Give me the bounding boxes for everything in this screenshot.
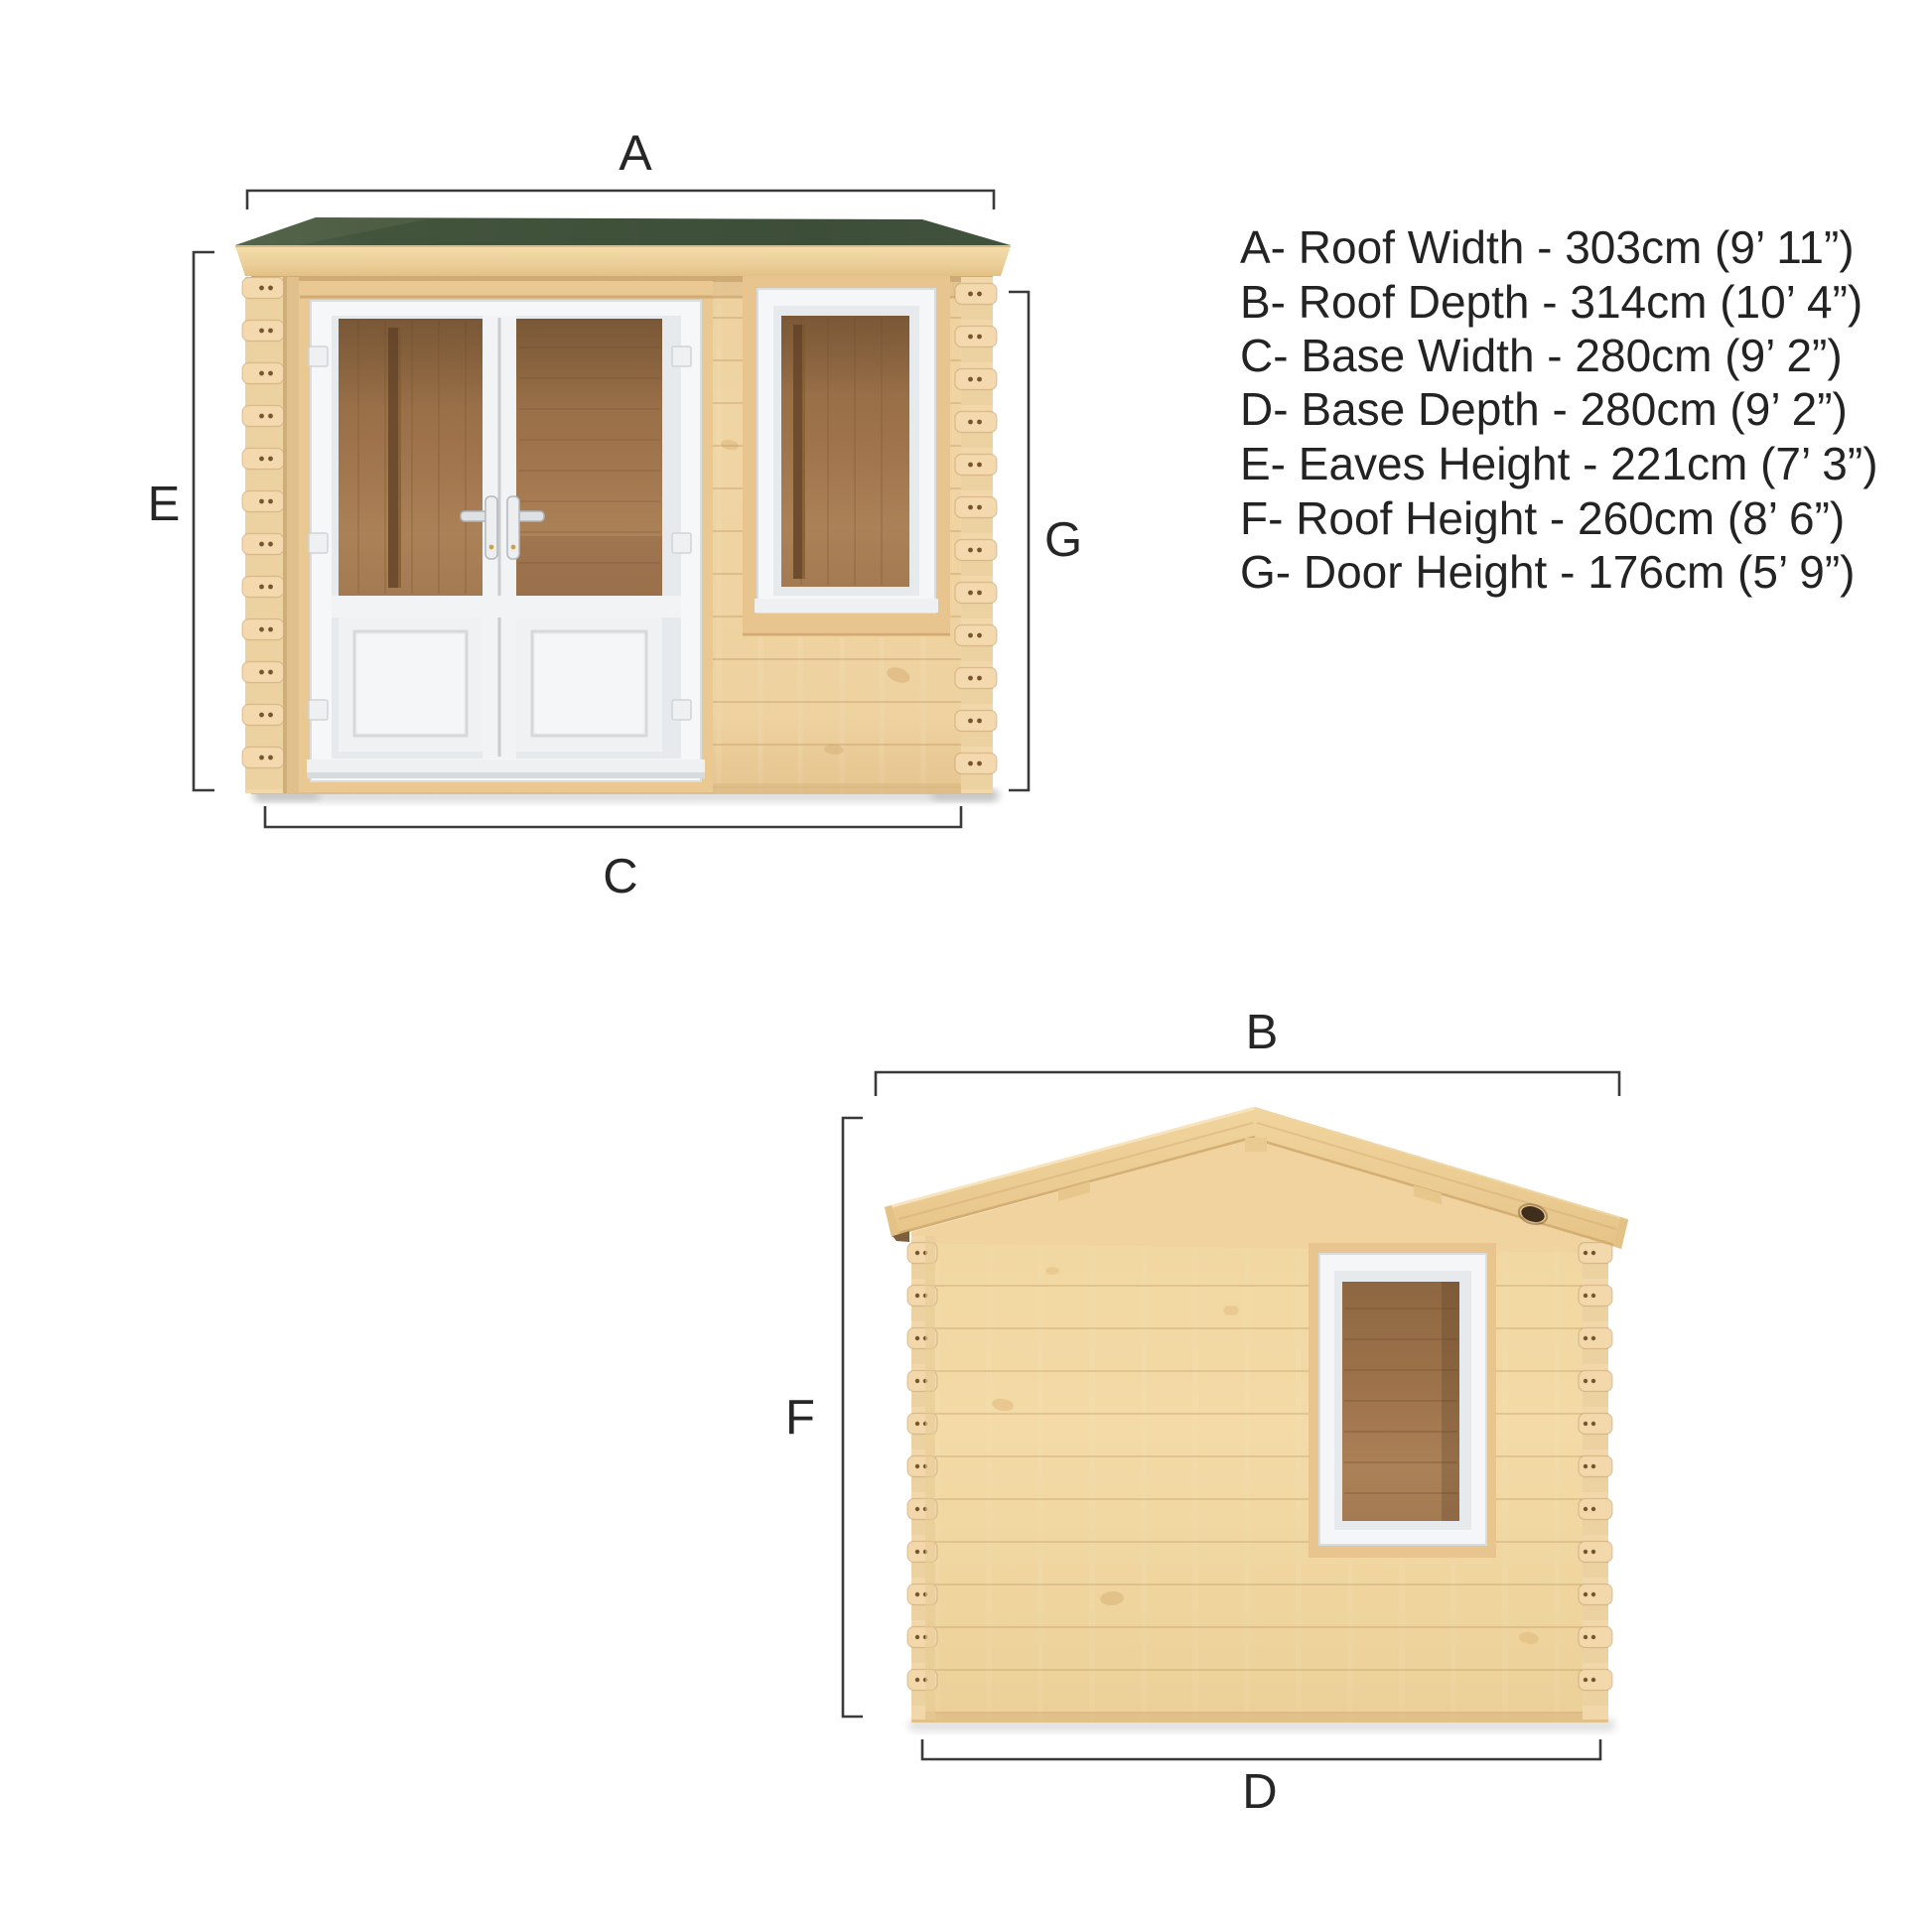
- svg-text:F- Roof Height - 260cm (8’ 6”): F- Roof Height - 260cm (8’ 6”): [1240, 492, 1845, 544]
- svg-text:F: F: [785, 1391, 815, 1445]
- svg-text:G- Door Height - 176cm (5’ 9”): G- Door Height - 176cm (5’ 9”): [1240, 546, 1855, 598]
- svg-text:B: B: [1246, 1006, 1279, 1059]
- svg-text:C- Base Width - 280cm (9’ 2”): C- Base Width - 280cm (9’ 2”): [1240, 330, 1843, 381]
- svg-text:E: E: [148, 478, 181, 531]
- svg-text:D: D: [1242, 1765, 1277, 1819]
- svg-text:A: A: [619, 125, 652, 181]
- svg-text:D- Base Depth - 280cm (9’ 2”): D- Base Depth - 280cm (9’ 2”): [1240, 383, 1848, 435]
- svg-text:E- Eaves Height - 221cm (7’ 3”: E- Eaves Height - 221cm (7’ 3”): [1240, 438, 1878, 489]
- svg-text:A- Roof Width - 303cm (9’ 11”): A- Roof Width - 303cm (9’ 11”): [1240, 221, 1855, 273]
- svg-text:B- Roof Depth - 314cm (10’ 4”): B- Roof Depth - 314cm (10’ 4”): [1240, 276, 1863, 328]
- svg-text:G: G: [1044, 513, 1082, 567]
- svg-text:C: C: [603, 850, 637, 903]
